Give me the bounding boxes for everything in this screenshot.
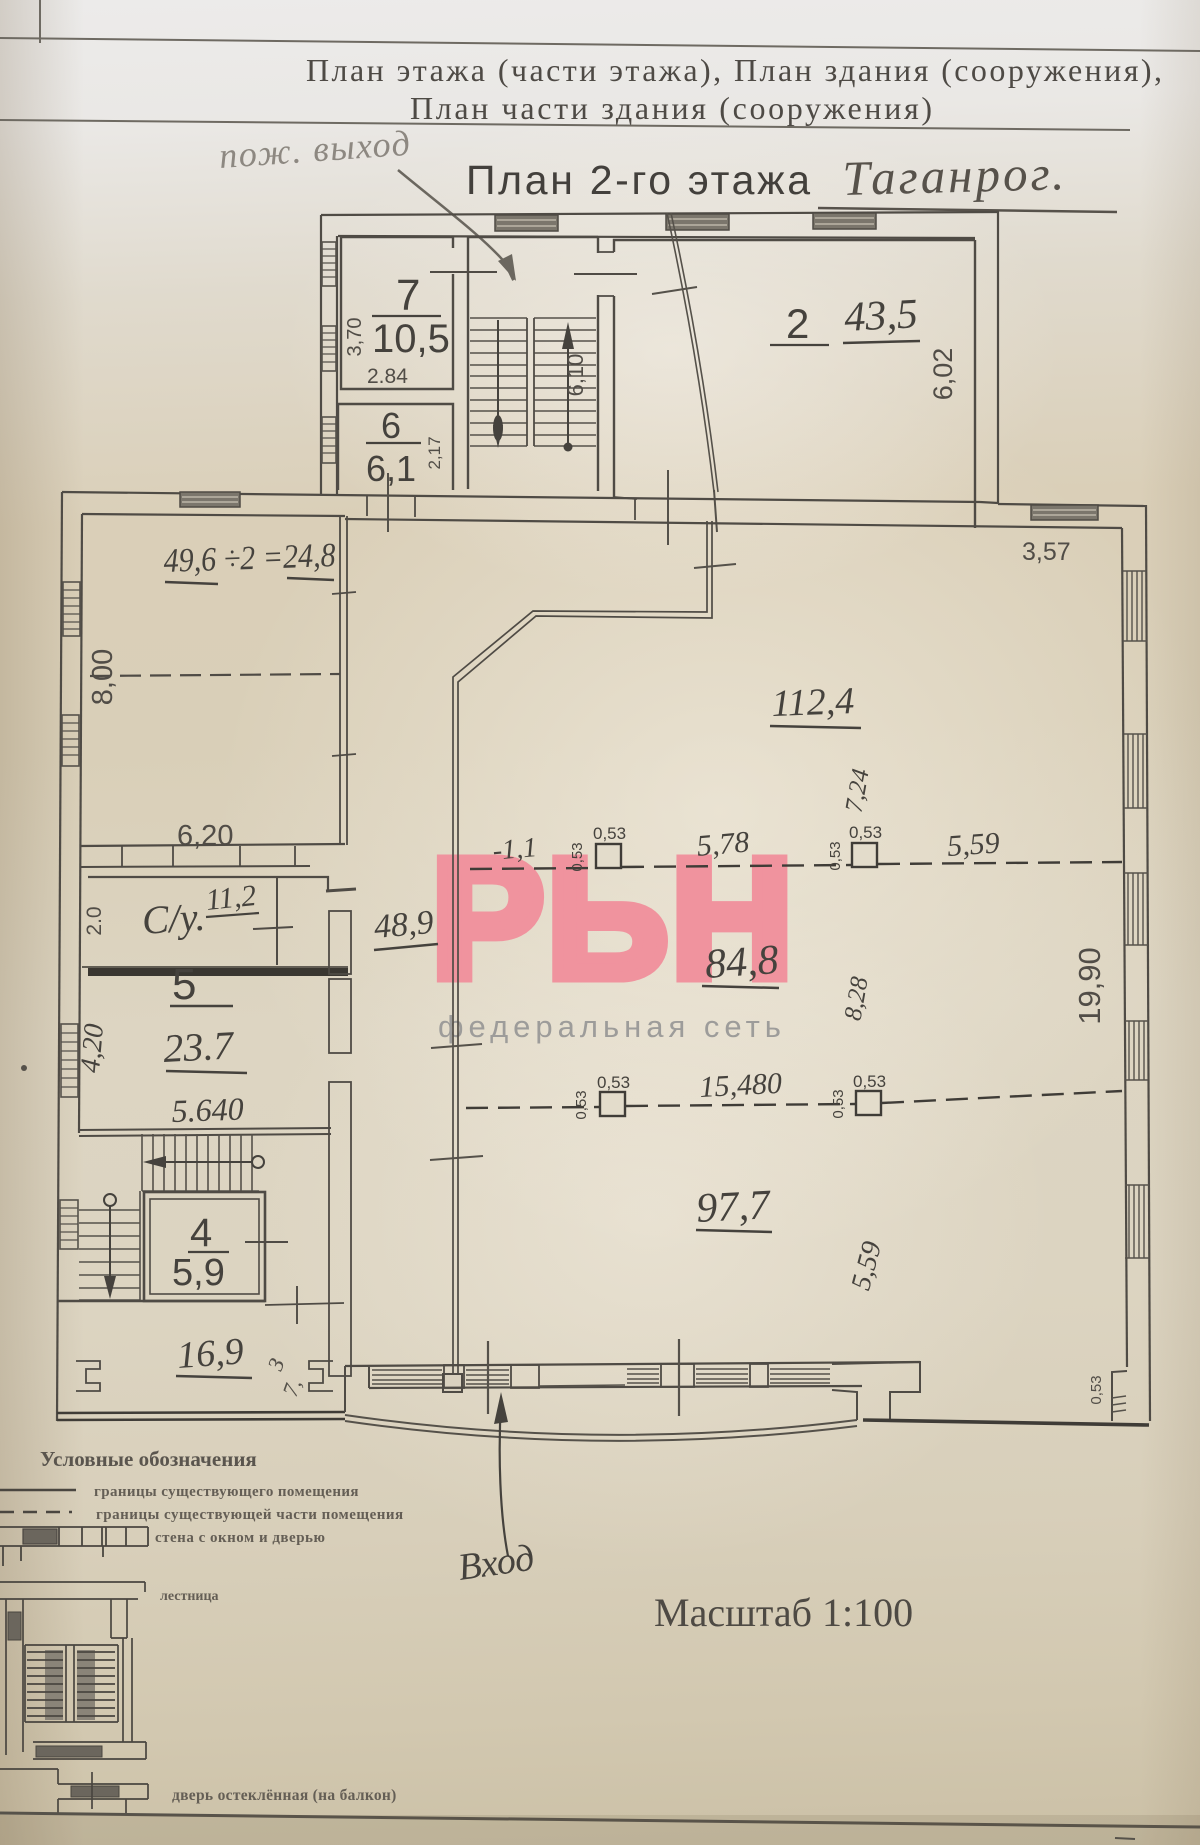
svg-text:4,20: 4,20 — [75, 1023, 110, 1075]
svg-text:19,90: 19,90 — [1072, 947, 1107, 1025]
svg-text:дверь остеклённая (на балкон): дверь остеклённая (на балкон) — [172, 1787, 397, 1804]
svg-text:0,53: 0,53 — [597, 1073, 630, 1092]
svg-text:пож. выход: пож. выход — [218, 123, 413, 176]
svg-text:План части здания (сооружения): План части здания (сооружения) — [410, 90, 932, 126]
svg-text:0,53: 0,53 — [830, 1089, 847, 1118]
svg-text:8,00: 8,00 — [87, 649, 119, 705]
svg-text:0,53: 0,53 — [573, 1090, 590, 1119]
svg-text:112,4: 112,4 — [771, 680, 855, 725]
svg-text:лестница: лестница — [160, 1589, 219, 1604]
svg-text:15,480: 15,480 — [699, 1067, 783, 1104]
svg-text:2.0: 2.0 — [83, 906, 106, 935]
svg-text:границы существующей части пом: границы существующей части помещения — [96, 1507, 404, 1523]
svg-text:0,53: 0,53 — [827, 841, 844, 870]
svg-text:З: З — [262, 1355, 289, 1374]
svg-text:7: 7 — [396, 271, 420, 320]
svg-text:6,02: 6,02 — [928, 348, 958, 401]
svg-text:5,59: 5,59 — [946, 826, 1001, 863]
svg-text:5.640: 5.640 — [171, 1091, 244, 1129]
svg-text:План 2-го этажа: План 2-го этажа — [466, 157, 810, 203]
svg-text:2.84: 2.84 — [367, 365, 408, 388]
svg-text:План этажа (части этажа), План: План этажа (части этажа), План здания (с… — [306, 52, 1162, 88]
svg-text:6,20: 6,20 — [177, 820, 233, 852]
svg-text:Таганрог.: Таганрог. — [842, 145, 1068, 206]
svg-text:16,9: 16,9 — [176, 1330, 245, 1377]
svg-text:3,57: 3,57 — [1022, 538, 1071, 566]
svg-text:5,59: 5,59 — [845, 1238, 888, 1293]
svg-text:6: 6 — [381, 405, 401, 446]
svg-text:23.7: 23.7 — [162, 1022, 236, 1071]
svg-text:стена с окном и дверью: стена с окном и дверью — [155, 1530, 325, 1546]
svg-text:49,6 ÷2 =24,8: 49,6 ÷2 =24,8 — [163, 537, 336, 580]
svg-text:5,78: 5,78 — [695, 825, 750, 862]
svg-text:границы существующего помещени: границы существующего помещения — [94, 1484, 359, 1500]
svg-text:97,7: 97,7 — [695, 1182, 773, 1232]
svg-text:7,24: 7,24 — [841, 767, 875, 815]
svg-text:10,5: 10,5 — [372, 317, 450, 361]
svg-text:11,2: 11,2 — [204, 879, 257, 917]
svg-text:48,9: 48,9 — [372, 904, 434, 946]
svg-text:43,5: 43,5 — [843, 291, 919, 341]
svg-text:Вход: Вход — [455, 1537, 536, 1589]
svg-text:-1,1: -1,1 — [491, 832, 538, 867]
svg-text:5: 5 — [172, 960, 196, 1009]
svg-text:федеральная сеть: федеральная сеть — [438, 1009, 786, 1044]
svg-text:2,17: 2,17 — [425, 436, 444, 469]
svg-text:0,53: 0,53 — [849, 823, 882, 842]
svg-text:3,70: 3,70 — [344, 318, 366, 357]
svg-text:6,10: 6,10 — [563, 354, 588, 397]
svg-text:7,: 7, — [277, 1376, 306, 1400]
svg-text:2: 2 — [786, 300, 809, 347]
svg-text:0,53: 0,53 — [569, 842, 586, 871]
svg-text:0,53: 0,53 — [593, 824, 626, 843]
svg-text:0,53: 0,53 — [853, 1072, 886, 1091]
svg-text:6,1: 6,1 — [366, 448, 416, 489]
svg-text:0,53: 0,53 — [1088, 1375, 1105, 1404]
svg-text:5,9: 5,9 — [172, 1252, 225, 1294]
svg-text:84,8: 84,8 — [703, 937, 780, 988]
svg-text:Условные обозначения: Условные обозначения — [40, 1447, 257, 1471]
svg-text:8,28: 8,28 — [840, 974, 874, 1022]
svg-text:4: 4 — [190, 1211, 212, 1255]
svg-text:Масштаб 1:100: Масштаб 1:100 — [654, 1590, 913, 1635]
svg-text:С/у.: С/у. — [140, 894, 206, 943]
